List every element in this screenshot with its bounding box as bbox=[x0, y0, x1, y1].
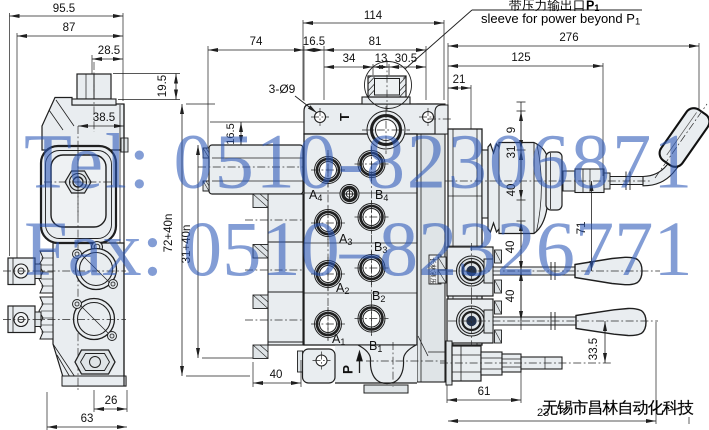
svg-text:81: 81 bbox=[369, 36, 382, 48]
svg-text:Tel: 0510-82306871: Tel: 0510-82306871 bbox=[24, 118, 694, 205]
svg-text:114: 114 bbox=[364, 10, 383, 22]
svg-text:sleeve for power beyond P1: sleeve for power beyond P1 bbox=[481, 11, 640, 28]
svg-text:87: 87 bbox=[63, 22, 76, 34]
svg-text:Fax: 0510–82326771: Fax: 0510–82326771 bbox=[24, 205, 693, 292]
svg-text:34: 34 bbox=[343, 53, 356, 65]
svg-text:13: 13 bbox=[375, 53, 388, 65]
svg-text:30.5: 30.5 bbox=[395, 53, 417, 65]
svg-text:125: 125 bbox=[511, 52, 530, 64]
svg-text:33.5: 33.5 bbox=[588, 338, 600, 360]
svg-text:95.5: 95.5 bbox=[53, 3, 75, 15]
svg-text:21: 21 bbox=[453, 74, 466, 86]
svg-text:26: 26 bbox=[105, 395, 118, 407]
svg-text:P: P bbox=[341, 365, 356, 374]
svg-text:19.5: 19.5 bbox=[157, 75, 169, 97]
svg-text:28.5: 28.5 bbox=[98, 45, 120, 57]
svg-text:63: 63 bbox=[81, 413, 94, 425]
svg-text:40: 40 bbox=[270, 369, 283, 381]
svg-text:74: 74 bbox=[250, 36, 263, 48]
svg-text:23: 23 bbox=[537, 407, 549, 419]
svg-text:276: 276 bbox=[559, 32, 578, 44]
svg-text:3-Ø9: 3-Ø9 bbox=[269, 82, 296, 96]
svg-text:16.5: 16.5 bbox=[303, 36, 325, 48]
svg-text:61: 61 bbox=[478, 386, 491, 398]
